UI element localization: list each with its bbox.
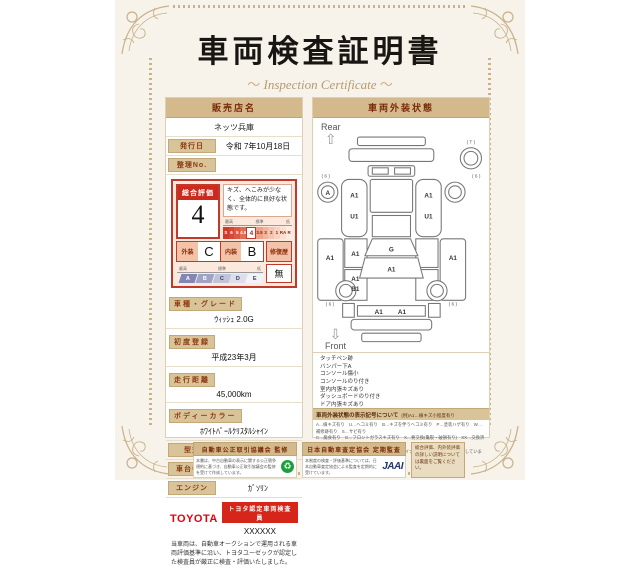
spec-first-registration: 初度登録 平成23年3月 bbox=[166, 329, 302, 367]
legend-line: A…線キズ有り U…ヘコミ有り B…キズを伴うヘコミ有り P…塗装ハゲ有り W…… bbox=[316, 422, 486, 435]
spec-mileage-value: 45,000km bbox=[166, 387, 302, 401]
front-mark: A1 bbox=[398, 309, 407, 316]
frame-chain-left bbox=[149, 55, 152, 425]
page-subtitle: Inspection Certificate bbox=[115, 74, 525, 93]
scale-cell-selected: 4 bbox=[246, 227, 256, 239]
repair-history-value: 無 bbox=[266, 264, 292, 283]
fair-trade-logo-icon: ♻ bbox=[281, 460, 294, 473]
panel-mark: A1 bbox=[351, 251, 360, 258]
note-line: コンソールのり付き bbox=[320, 379, 482, 387]
inspector-badge: トヨタ認定車両検査員 bbox=[222, 502, 298, 523]
wheel-mark: ( 6 ) bbox=[321, 173, 330, 179]
jaai-text: 本制度の検査・評価基準については、日本自動車査定協会による監査を定期的に受けてい… bbox=[305, 458, 380, 475]
dealer-header: 販売店名 bbox=[166, 98, 302, 118]
panel-mark: A1 bbox=[326, 255, 335, 262]
inspector-name: XXXXXX bbox=[222, 527, 298, 536]
legend-header: 車両外装状態の表示記号について (例)A1…線キズ小程度有り bbox=[313, 408, 489, 420]
ref-no-row: 整理No. bbox=[166, 156, 302, 175]
exterior-condition-panel: 車両外装状態 Rear ⇧ ⇩ Front bbox=[312, 97, 490, 438]
disclaimer-text: 当車両は、自動車オークションで運用される車両評価基準に沿い、トヨタユーゼックが認… bbox=[166, 538, 302, 571]
page-title: 車両検査証明書 bbox=[115, 26, 525, 71]
corner-ornament-icon bbox=[117, 2, 171, 56]
scale-high-label: 最高 bbox=[225, 219, 233, 225]
grade-scale: 最高 標準 低 A B C D E bbox=[176, 264, 264, 283]
spec-body-color-label: ボディーカラー bbox=[169, 409, 242, 423]
fair-trade-text: 本書は、中古自動車の表示に関する公正競争規約に基づき、自動車公正取引協議会の監修… bbox=[196, 458, 279, 475]
inspector-block: TOYOTA トヨタ認定車両検査員 XXXXXX bbox=[166, 498, 302, 538]
spec-first-registration-value: 平成23年3月 bbox=[166, 349, 302, 365]
spec-model: 車種・グレード ｳｨｯｼｭ 2.0G bbox=[166, 291, 302, 329]
spec-body-color: ボディーカラー ﾎﾜｲﾄﾊﾟｰﾙｸﾘｽﾀﾙｼｬｲﾝ bbox=[166, 403, 302, 441]
panel-mark: A1 bbox=[449, 255, 458, 262]
panel-mark: U1 bbox=[424, 214, 433, 221]
frame-chain-top bbox=[173, 5, 467, 8]
car-exploded-view: ( T ) ( 6 ) ( 6 ) A A1 U1 A1 U1 A1 A1 A1… bbox=[317, 136, 487, 348]
corner-ornament-icon bbox=[117, 424, 171, 478]
rating-scale-axis: 最高 標準 低 bbox=[223, 219, 292, 226]
wheel-mark: ( 6 ) bbox=[449, 302, 458, 308]
certificate: 車両検査証明書 Inspection Certificate 販売店名 ネッツ兵… bbox=[115, 0, 525, 480]
grade-mid-label: 標準 bbox=[218, 266, 226, 272]
issue-date-value: 令和 7年10月18日 bbox=[216, 141, 300, 152]
fair-trade-box: 自動車公正取引協議会 監修 本書は、中古自動車の表示に関する公正競争規約に基づき… bbox=[193, 442, 297, 478]
corner-ornament-icon bbox=[469, 2, 523, 56]
dealer-name: ネッツ兵庫 bbox=[166, 118, 302, 137]
exterior-grade: C bbox=[198, 242, 220, 261]
rating-scale: S 6 5 4.5 4 3.5 3 2 1 RA R bbox=[223, 227, 292, 239]
vehicle-info-panel: 販売店名 ネッツ兵庫 発行日 令和 7年10月18日 整理No. 総合評価 4 … bbox=[165, 97, 303, 438]
wheel-mark: ( 6 ) bbox=[472, 173, 481, 179]
panel-mark: A1 bbox=[350, 192, 359, 199]
note-line: コンソール傷小 bbox=[320, 371, 482, 379]
scale-low-label: 低 bbox=[286, 219, 290, 225]
ref-no-label: 整理No. bbox=[168, 158, 216, 172]
jaai-logo: JAAI bbox=[382, 461, 403, 472]
spec-mileage: 走行距離 45,000km bbox=[166, 367, 302, 403]
toyota-logo: TOYOTA bbox=[170, 513, 218, 525]
footer: 自動車公正取引協議会 監修 本書は、中古自動車の表示に関する公正競争規約に基づき… bbox=[193, 442, 465, 478]
issue-date-label: 発行日 bbox=[168, 139, 216, 153]
spec-first-registration-label: 初度登録 bbox=[169, 335, 215, 349]
issue-date-row: 発行日 令和 7年10月18日 bbox=[166, 137, 302, 156]
panel-mark: A1 bbox=[351, 276, 360, 283]
hood-mark: A1 bbox=[387, 267, 396, 274]
front-mark: A1 bbox=[375, 309, 384, 316]
note-line: タッチペン跡 bbox=[320, 356, 482, 364]
note-line: ダッシュボードのり付き bbox=[320, 394, 482, 402]
overall-rating-label: 総合評価 bbox=[178, 186, 218, 200]
engine-value: ｶﾞｿﾘﾝ bbox=[216, 483, 300, 494]
legend-title: 車両外装状態の表示記号について bbox=[316, 411, 398, 419]
grade-cell: E bbox=[246, 274, 265, 283]
overall-rating-box: 総合評価 4 キズ、へこみが少なく、全体的に良好な状態です。 最高 標準 低 S… bbox=[171, 179, 297, 288]
car-diagram: Rear ⇧ ⇩ Front bbox=[313, 118, 489, 352]
scale-mid-label: 標準 bbox=[256, 219, 264, 225]
spare-mark: ( T ) bbox=[467, 139, 476, 145]
panel-mark: B1 bbox=[351, 286, 360, 293]
interior-label: 内装 bbox=[220, 242, 241, 261]
jaai-box: 日本自動車査定協会 定期監査 本制度の検査・評価基準については、日本自動車査定協… bbox=[302, 442, 406, 478]
grade-high-label: 最高 bbox=[179, 266, 187, 272]
spec-body-color-value: ﾎﾜｲﾄﾊﾟｰﾙｸﾘｽﾀﾙｼｬｲﾝ bbox=[166, 423, 302, 439]
grade-low-label: 低 bbox=[257, 266, 261, 272]
glass-mark: G bbox=[389, 247, 394, 254]
spec-mileage-label: 走行距離 bbox=[169, 373, 215, 387]
condition-notes: タッチペン跡 バンパー下A コンソール傷小 コンソールのり付き 室内内張キズあり… bbox=[313, 352, 489, 408]
rating-comment: キズ、へこみが少なく、全体的に良好な状態です。 bbox=[223, 184, 292, 217]
panel-mark: U1 bbox=[350, 214, 359, 221]
repair-history-label: 修復歴 bbox=[266, 241, 292, 262]
wheel-a-mark: A bbox=[326, 190, 331, 197]
exterior-panel-header: 車両外装状態 bbox=[313, 98, 489, 118]
spec-model-label: 車種・グレード bbox=[169, 297, 242, 311]
engine-label: エンジン bbox=[168, 481, 216, 495]
exterior-label: 外装 bbox=[177, 242, 198, 261]
engine-row: エンジン ｶﾞｿﾘﾝ bbox=[166, 479, 302, 498]
jaai-header: 日本自動車査定協会 定期監査 bbox=[302, 442, 406, 456]
grade-cell: A bbox=[179, 274, 198, 283]
spec-model-value: ｳｨｯｼｭ 2.0G bbox=[166, 311, 302, 327]
scale-cell: R bbox=[286, 227, 292, 239]
wheel-mark: ( 6 ) bbox=[326, 302, 335, 308]
overall-rating-value: 4 bbox=[178, 200, 218, 230]
fair-trade-header: 自動車公正取引協議会 監修 bbox=[193, 442, 297, 456]
panel-mark: A1 bbox=[424, 192, 433, 199]
interior-grade: B bbox=[241, 242, 263, 261]
backside-note: 総合評価、内外装評価の詳しい説明については裏面をご覧ください。 bbox=[411, 442, 465, 478]
grade-cell: B bbox=[195, 274, 214, 283]
overall-rating: 総合評価 4 bbox=[176, 184, 220, 239]
legend-example: (例)A1…線キズ小程度有り bbox=[401, 413, 455, 419]
